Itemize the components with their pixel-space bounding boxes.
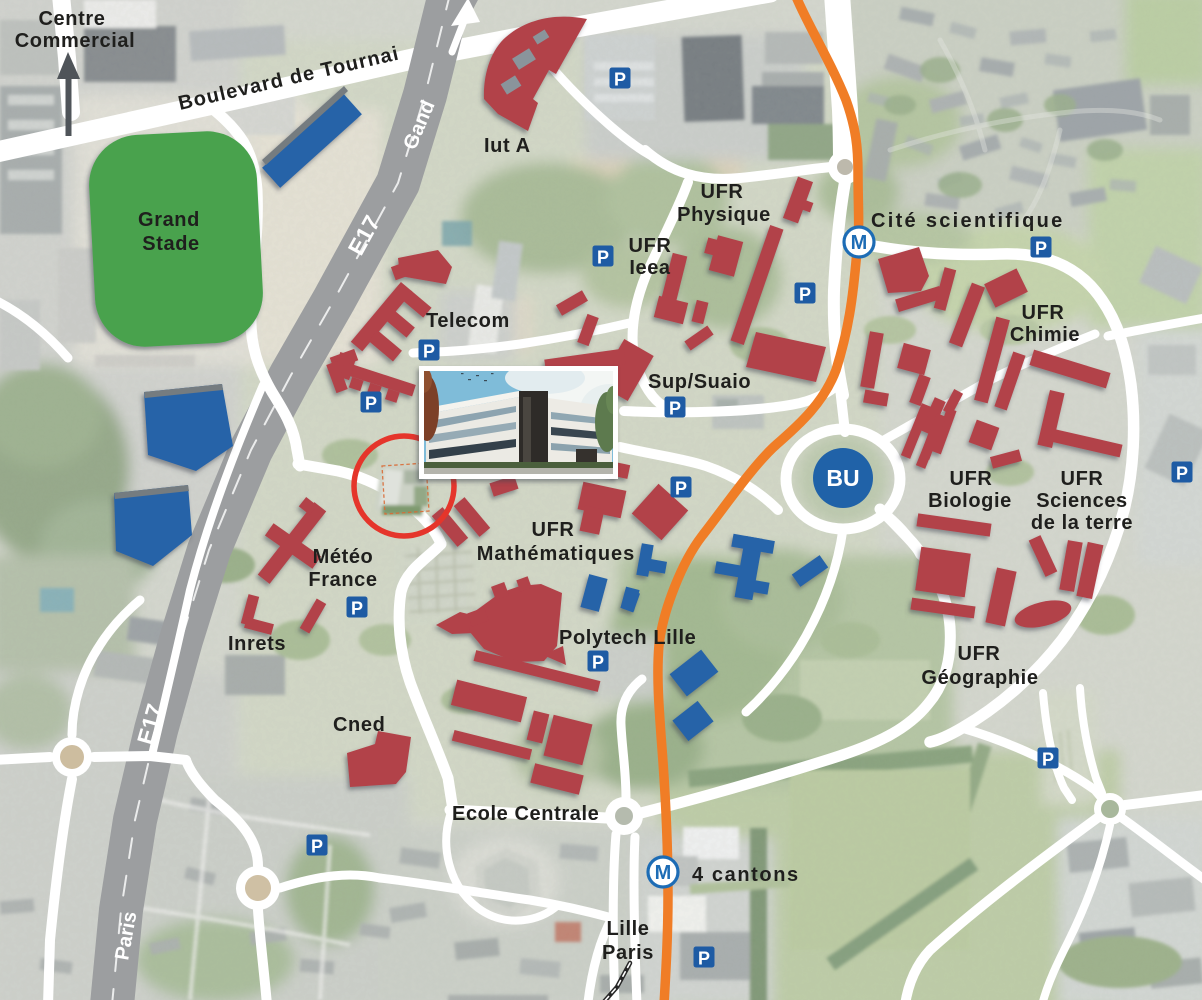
svg-text:UFR: UFR	[701, 181, 744, 203]
svg-text:P: P	[597, 248, 609, 268]
svg-text:M: M	[655, 862, 672, 884]
svg-text:Météo: Météo	[313, 546, 374, 568]
svg-text:UFR: UFR	[1061, 468, 1104, 490]
svg-text:P: P	[675, 479, 687, 499]
svg-text:Ieea: Ieea	[629, 257, 671, 279]
svg-text:France: France	[308, 569, 377, 591]
svg-text:Commercial: Commercial	[15, 30, 136, 52]
svg-text:Sup/Suaio: Sup/Suaio	[648, 371, 751, 393]
svg-text:UFR: UFR	[950, 468, 993, 490]
svg-text:UFR: UFR	[629, 235, 672, 257]
svg-text:Polytech Lille: Polytech Lille	[559, 627, 696, 649]
svg-text:Stade: Stade	[142, 233, 199, 255]
svg-text:Biologie: Biologie	[928, 490, 1012, 512]
svg-text:Géographie: Géographie	[921, 667, 1038, 689]
svg-text:P: P	[1176, 464, 1188, 484]
svg-text:Centre: Centre	[39, 8, 106, 30]
svg-text:P: P	[1042, 750, 1054, 770]
svg-text:Ecole Centrale: Ecole Centrale	[452, 803, 599, 825]
svg-text:BU: BU	[826, 465, 859, 491]
svg-text:de la terre: de la terre	[1031, 512, 1133, 534]
svg-text:P: P	[365, 394, 377, 414]
svg-text:UFR: UFR	[958, 643, 1001, 665]
svg-text:P: P	[1035, 239, 1047, 259]
svg-text:UFR: UFR	[1022, 302, 1065, 324]
svg-text:P: P	[311, 837, 323, 857]
svg-text:Paris: Paris	[602, 942, 654, 964]
svg-text:P: P	[351, 599, 363, 619]
svg-text:M: M	[851, 232, 868, 254]
svg-text:Telecom: Telecom	[426, 310, 510, 332]
svg-text:P: P	[698, 949, 710, 969]
svg-text:Lille: Lille	[606, 918, 649, 940]
svg-text:Inrets: Inrets	[228, 633, 286, 655]
svg-text:Sciences: Sciences	[1036, 490, 1128, 512]
svg-text:Iut A: Iut A	[484, 135, 531, 157]
svg-text:P: P	[614, 70, 626, 90]
svg-text:Physique: Physique	[677, 204, 771, 226]
svg-text:P: P	[592, 653, 604, 673]
svg-text:P: P	[669, 399, 681, 419]
svg-text:P: P	[799, 285, 811, 305]
svg-text:Mathématiques: Mathématiques	[477, 543, 636, 565]
svg-text:4 cantons: 4 cantons	[692, 864, 800, 886]
svg-text:Chimie: Chimie	[1010, 324, 1080, 346]
svg-text:Cité scientifique: Cité scientifique	[871, 210, 1065, 232]
svg-text:Cned: Cned	[333, 714, 385, 736]
svg-text:Grand: Grand	[138, 209, 200, 231]
svg-text:UFR: UFR	[532, 519, 575, 541]
svg-text:P: P	[423, 342, 435, 362]
